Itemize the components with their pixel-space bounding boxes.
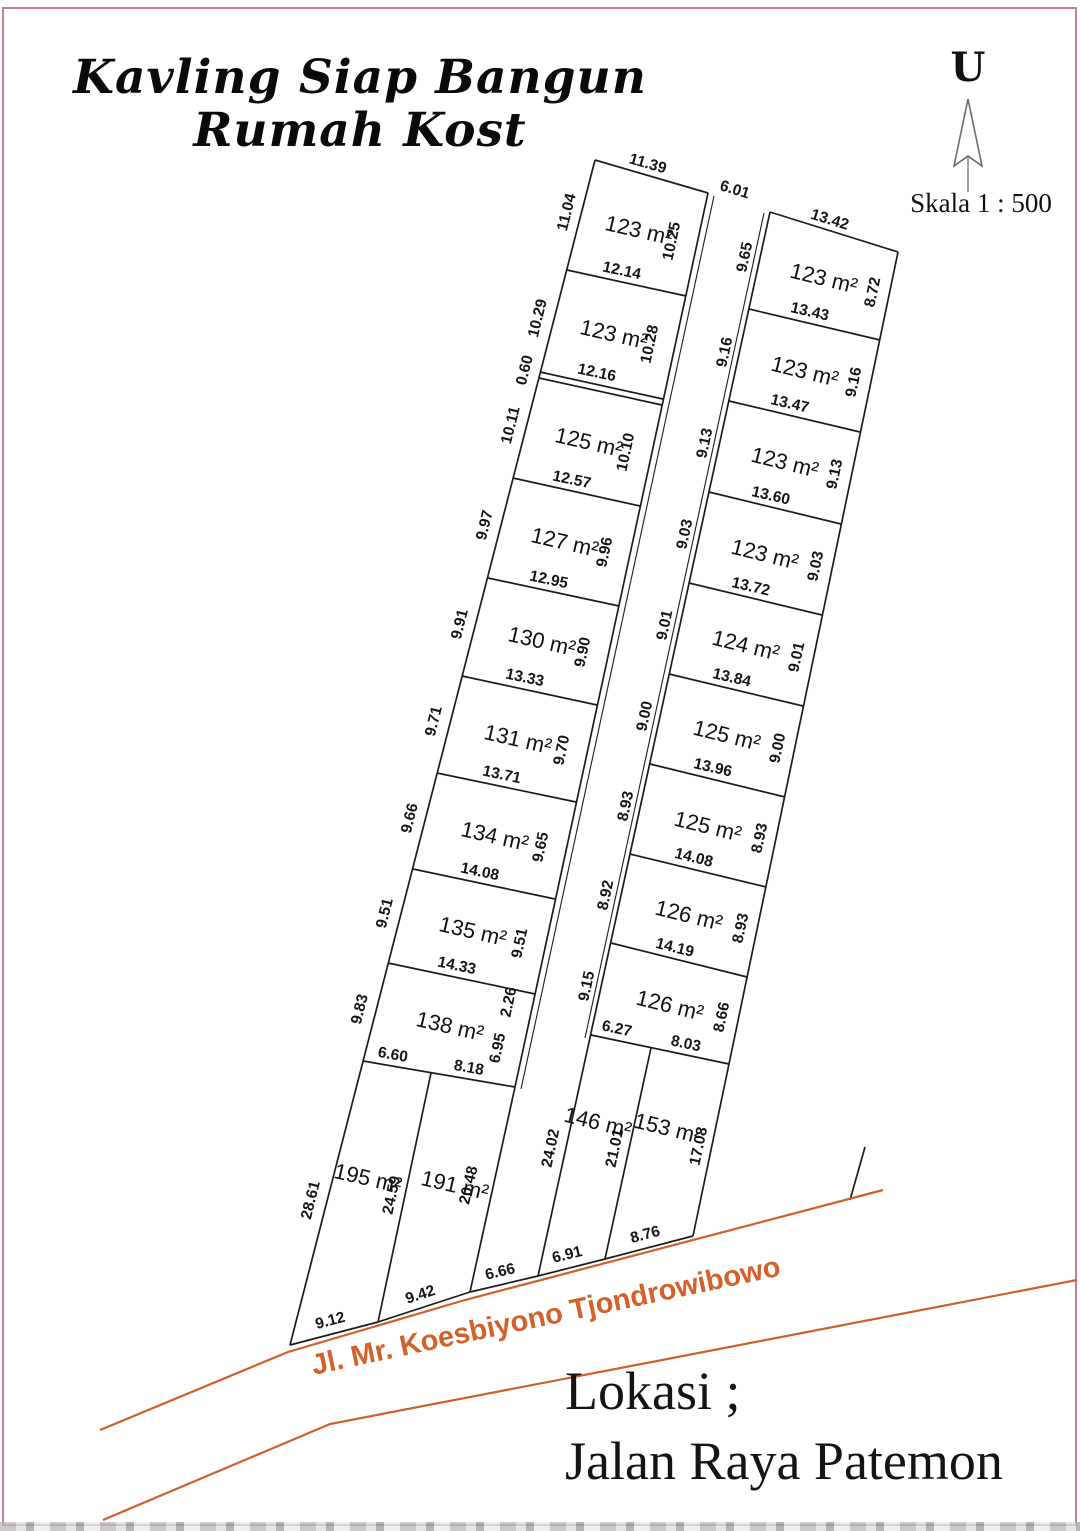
plot-area-label: 123 m²: [578, 314, 650, 354]
dimension-label: 6.27: [600, 1017, 633, 1040]
dimension-label: 6.60: [377, 1044, 410, 1066]
dimension-label: 11.04: [554, 191, 580, 232]
dimension-label: 6.95: [486, 1031, 509, 1064]
dimension-label: 2.26: [497, 985, 520, 1018]
dimension-label: 14.08: [673, 845, 715, 871]
dimension-label: 9.03: [673, 517, 696, 550]
dimension-label: 9.00: [633, 700, 656, 733]
dimension-label: 28.61: [298, 1179, 324, 1221]
plot-area-label: 130 m²: [506, 621, 578, 661]
plot-area-label: 123 m²: [788, 258, 860, 299]
dimension-label: 10.29: [525, 297, 551, 339]
plot-area-label: 195 m²: [332, 1158, 404, 1198]
dimension-label: 10.11: [498, 404, 524, 445]
plot-area-label: 146 m²: [562, 1102, 634, 1143]
dimension-label: 9.97: [473, 509, 497, 542]
dimension-label: 6.01: [718, 177, 752, 202]
dimension-label: 6.91: [551, 1243, 585, 1267]
dimension-label: 14.19: [654, 935, 696, 961]
location-block: Lokasi ; Jalan Raya Patemon: [565, 1356, 1003, 1496]
plot-area-label: 125 m²: [553, 422, 625, 462]
dimension-label: 9.65: [529, 830, 552, 863]
plot-area-label: 134 m²: [459, 816, 531, 856]
dimension-label: 6.66: [484, 1260, 518, 1283]
bottom-scan-artifact: [0, 1522, 1080, 1531]
dimension-label: 9.66: [398, 801, 422, 835]
dimension-label: 9.13: [823, 457, 846, 490]
plot-area-label: 123 m²: [749, 442, 821, 483]
dimension-label: 9.12: [313, 1309, 347, 1333]
location-line-2: Jalan Raya Patemon: [565, 1426, 1003, 1496]
dimension-label: 13.84: [711, 665, 753, 690]
dimension-label: 11.39: [627, 150, 669, 177]
plot-area-label: 123 m²: [603, 210, 675, 250]
dimension-label: 9.70: [550, 734, 573, 767]
plot-area-label: 131 m²: [482, 719, 554, 759]
plot-area-label: 126 m²: [653, 895, 725, 936]
dimension-label: 8.72: [861, 276, 884, 309]
plot-area-label: 126 m²: [634, 985, 706, 1026]
dimension-label: 9.16: [713, 335, 736, 368]
plot-boundary-line: [363, 1061, 515, 1087]
plot-area-label: 153 m²: [632, 1108, 704, 1149]
plot-area-label: 125 m²: [691, 715, 763, 756]
plot-area-label: 138 m²: [414, 1006, 486, 1046]
plot-area-label: 123 m²: [769, 351, 841, 392]
plot-boundary-line: [591, 1035, 729, 1064]
dimension-label: 9.16: [842, 365, 865, 398]
plot-boundary-line: [850, 1147, 865, 1200]
dimension-label: 13.42: [809, 206, 851, 234]
dimension-label: 9.00: [766, 732, 789, 765]
dimension-label: 9.51: [508, 926, 531, 959]
dimension-label: 8.93: [729, 911, 752, 944]
site-plan-page: Kavling Siap Bangun Rumah Kost U Skala 1…: [0, 0, 1080, 1531]
plot-area-label: 127 m²: [529, 522, 601, 562]
dimension-label: 8.66: [710, 1000, 733, 1033]
dimension-label: 9.01: [785, 640, 808, 673]
dimension-label: 9.91: [448, 607, 472, 641]
dimension-label: 9.01: [653, 608, 676, 641]
dimension-label: 9.71: [422, 704, 446, 738]
dimension-label: 8.76: [628, 1223, 662, 1247]
dimension-label: 13.60: [750, 483, 792, 508]
dimension-label: 24.02: [539, 1127, 564, 1168]
location-line-1: Lokasi ;: [565, 1356, 1003, 1426]
plot-area-label: 135 m²: [437, 911, 509, 951]
dimension-label: 9.13: [693, 426, 716, 459]
dimension-label: 8.93: [614, 789, 637, 822]
dimension-label: 9.65: [733, 240, 756, 273]
dimension-label: 9.03: [804, 549, 827, 582]
dimension-label: 9.83: [348, 992, 372, 1026]
dimension-label: 13.72: [730, 574, 772, 599]
dimension-label: 13.96: [692, 755, 734, 780]
plot-area-label: 124 m²: [710, 625, 782, 666]
dimension-label: 0.60: [513, 354, 537, 387]
plot-area-label: 123 m²: [729, 534, 801, 575]
dimension-label: 8.93: [748, 821, 771, 854]
dimension-label: 9.51: [373, 896, 397, 930]
dimension-label: 9.15: [575, 969, 598, 1002]
plot-area-label: 125 m²: [672, 806, 744, 847]
dimension-label: 8.18: [453, 1057, 486, 1079]
